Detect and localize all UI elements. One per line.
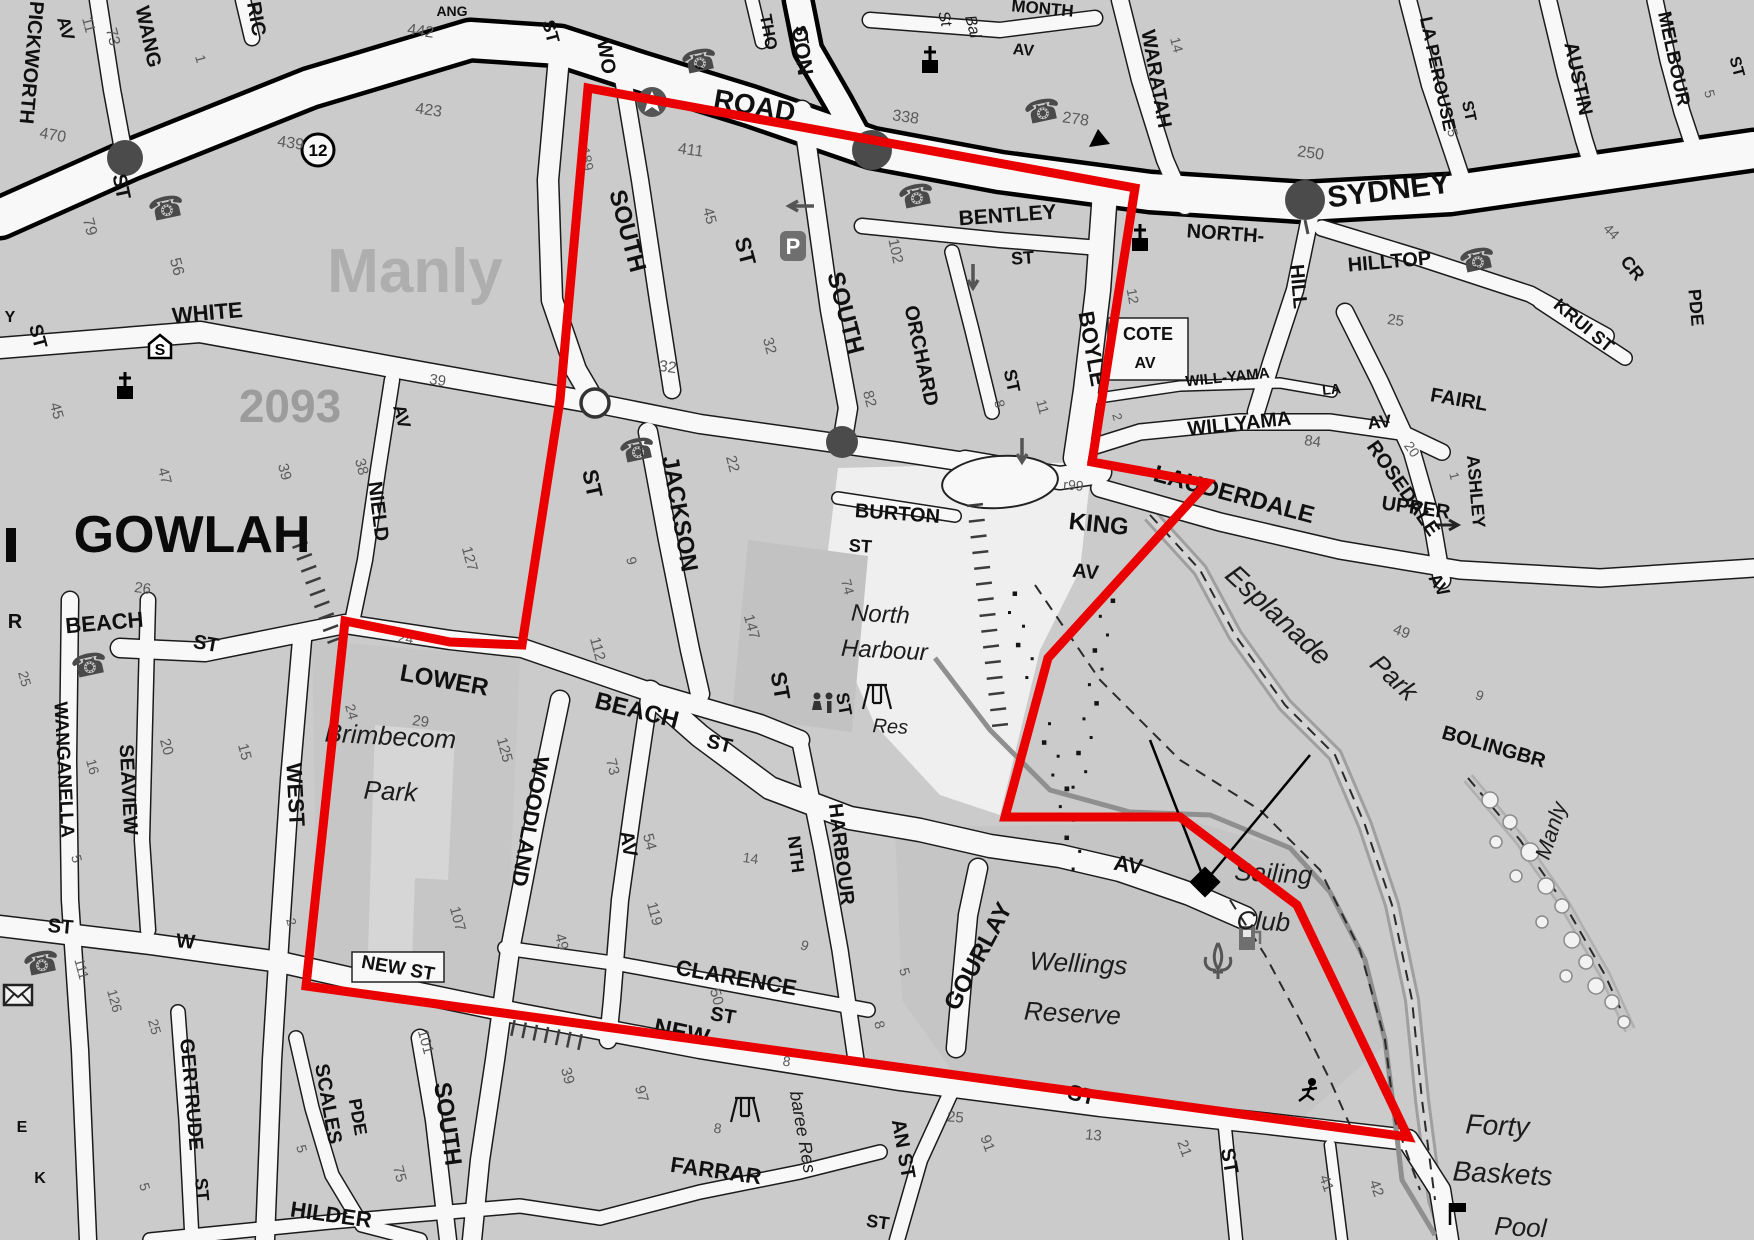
rock-0 [1482, 792, 1498, 808]
label-st: ST [709, 1003, 738, 1029]
label-baskets: Baskets [1452, 1155, 1553, 1191]
envelope-icon [4, 985, 32, 1005]
rock-2 [1490, 836, 1502, 848]
label-la: LA [1321, 380, 1341, 398]
label-av: AV [1134, 355, 1155, 372]
label-st: ST [766, 670, 796, 703]
street-map: ☎☎☎☎☎☎☎☎SP12PICKWORTHAV1173470WANG1RIC44… [0, 0, 1754, 1240]
label-14: 14 [742, 849, 760, 867]
label-av: AV [1012, 41, 1035, 60]
label-411: 411 [677, 140, 705, 160]
label-k: K [34, 1170, 46, 1187]
label-hill: HILL [1285, 263, 1311, 309]
label-st: ST [192, 631, 221, 657]
label-res: Res [872, 715, 909, 739]
label-pde: PDE [1684, 288, 1707, 327]
label-harbour: Harbour [840, 635, 929, 667]
map-screenshot: ☎☎☎☎☎☎☎☎SP12PICKWORTHAV1173470WANG1RIC44… [0, 0, 1754, 1240]
rock-13 [1618, 1016, 1630, 1028]
parking-icon: P [780, 231, 806, 261]
label-e: E [17, 1119, 28, 1136]
label-st: ST [865, 1211, 891, 1234]
label-west: WEST [281, 762, 309, 827]
label-26: 26 [133, 579, 152, 598]
label-25: 25 [1386, 311, 1405, 330]
label-32: 32 [658, 358, 678, 377]
svg-text:P: P [786, 234, 801, 259]
label-39: 39 [428, 371, 447, 390]
label-manly: Manly [327, 237, 503, 306]
label-av: AV [1367, 411, 1393, 433]
label-av: AV [615, 829, 641, 859]
label-st: ST [832, 691, 856, 717]
label-st: ST [848, 535, 872, 557]
label-av: AV [1071, 560, 1100, 585]
label-13: 13 [1084, 1126, 1102, 1144]
rock-11 [1588, 978, 1604, 994]
label-reserve: Reserve [1023, 995, 1121, 1030]
label-club: Club [1236, 905, 1291, 938]
label-av: AV [1112, 850, 1145, 880]
rock-5 [1538, 878, 1554, 894]
route12-icon: 12 [302, 134, 334, 166]
label-st: ST [1010, 247, 1034, 269]
svg-text:12: 12 [309, 141, 328, 160]
dot-icon [107, 140, 143, 176]
label-st: ST [47, 915, 74, 939]
svg-text:S: S [155, 342, 166, 359]
dot-icon [826, 426, 858, 458]
label-12: 12 [1124, 287, 1142, 305]
label-84: 84 [1303, 432, 1322, 451]
ring-icon [581, 389, 609, 417]
rock-8 [1564, 932, 1580, 948]
label-park: Park [363, 775, 420, 808]
seaview-st [142, 600, 148, 930]
label-forty: Forty [1465, 1108, 1532, 1142]
label-st: ST [191, 1177, 213, 1202]
label-gowlah: GOWLAH [74, 506, 311, 564]
label-2093: 2093 [239, 380, 341, 432]
label-wellings: Wellings [1029, 945, 1128, 980]
label-ang: ANG [436, 3, 467, 19]
label-pool: Pool [1494, 1211, 1549, 1240]
label-y: Y [5, 309, 16, 326]
rock-7 [1536, 916, 1548, 928]
rock-10 [1560, 970, 1572, 982]
label-w: W [175, 930, 196, 954]
label-north: North [850, 599, 910, 629]
label-r: R [8, 611, 23, 633]
rock-4 [1510, 870, 1522, 882]
rock-6 [1555, 899, 1569, 913]
label-r99: r99 [1063, 476, 1085, 494]
rock-1 [1503, 815, 1517, 829]
rock-12 [1605, 995, 1619, 1009]
clipped-letter-fragment [6, 528, 16, 562]
label-cote: COTE [1123, 324, 1173, 344]
rock-9 [1579, 955, 1593, 969]
label-25: 25 [946, 1108, 964, 1126]
label-st: ST [1216, 1146, 1242, 1175]
